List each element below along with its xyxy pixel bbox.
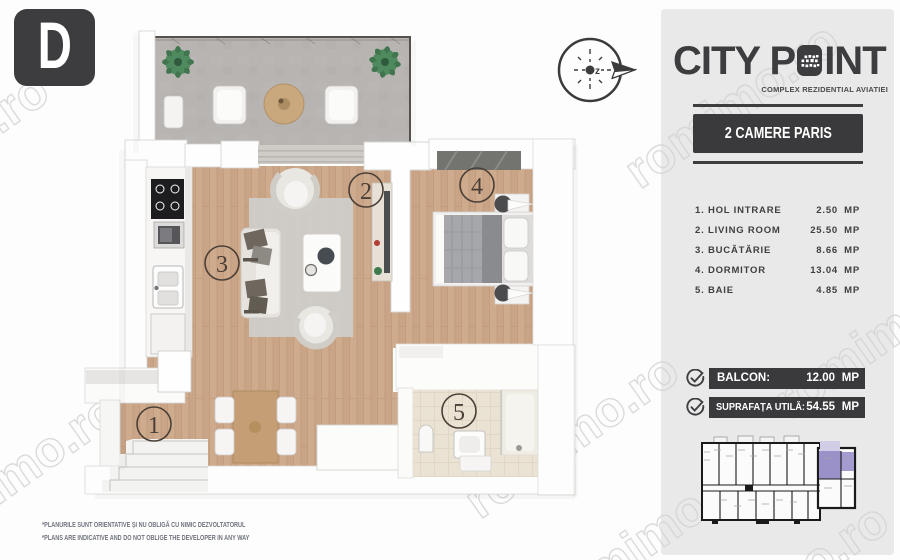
svg-text:3: 3 xyxy=(216,252,228,278)
svg-text:2: 2 xyxy=(360,179,372,205)
svg-text:4: 4 xyxy=(471,174,483,200)
svg-text:z: z xyxy=(595,66,600,77)
svg-text:1: 1 xyxy=(148,413,160,439)
svg-text:5: 5 xyxy=(453,400,465,426)
